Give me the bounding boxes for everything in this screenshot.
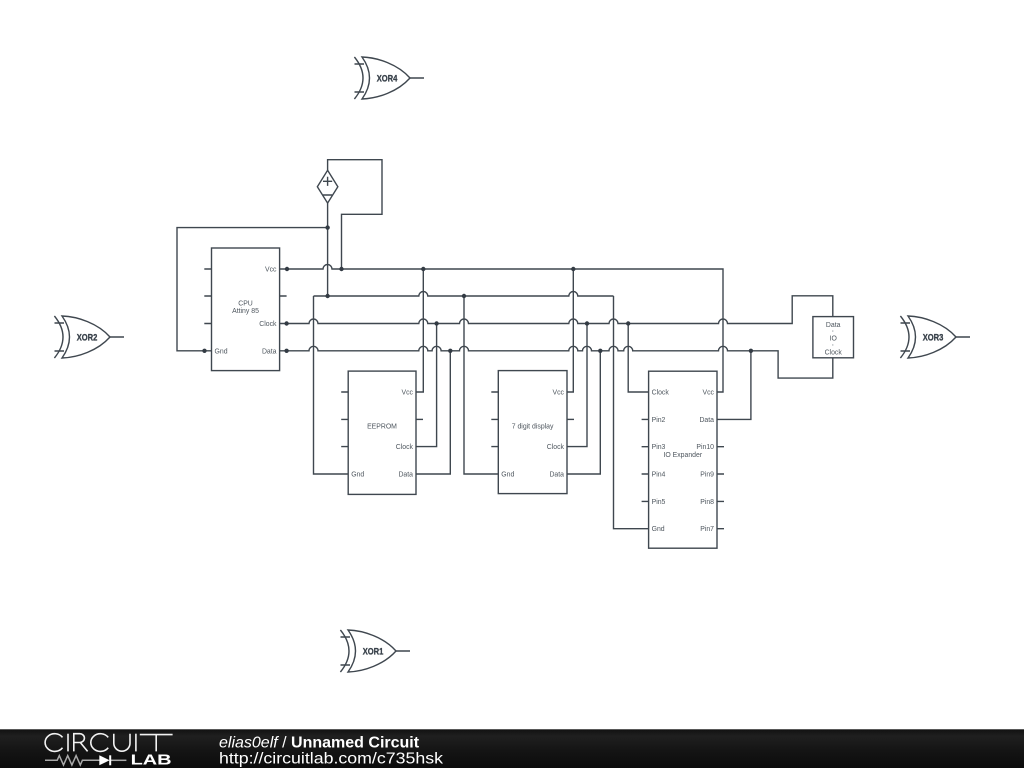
svg-text:elias0elf / Unnamed Circuit: elias0elf / Unnamed Circuit [219, 734, 420, 751]
svg-text:Data: Data [262, 348, 277, 355]
svg-text:Gnd: Gnd [501, 472, 514, 479]
svg-text:Vcc: Vcc [265, 267, 277, 274]
svg-text:Pin4: Pin4 [652, 472, 666, 479]
svg-text:Vcc: Vcc [553, 390, 565, 397]
svg-text:LAB: LAB [131, 752, 172, 768]
svg-text:Pin3: Pin3 [652, 444, 666, 451]
svg-text:IO Expander: IO Expander [663, 452, 702, 459]
svg-text:Vcc: Vcc [402, 390, 414, 397]
svg-text:Data: Data [826, 322, 841, 329]
svg-text:Clock: Clock [259, 321, 277, 328]
svg-text:Clock: Clock [547, 444, 565, 451]
svg-text:Data: Data [549, 472, 564, 479]
svg-text:XOR4: XOR4 [377, 73, 398, 84]
svg-text:XOR1: XOR1 [363, 646, 384, 657]
svg-text:Data: Data [398, 472, 413, 479]
svg-text:Pin7: Pin7 [700, 526, 714, 533]
svg-text:http://circuitlab.com/c735hsk: http://circuitlab.com/c735hsk [219, 751, 444, 768]
svg-text:Pin2: Pin2 [652, 417, 666, 424]
svg-text:Clock: Clock [652, 390, 670, 397]
svg-text:Clock: Clock [396, 444, 414, 451]
svg-text:Pin5: Pin5 [652, 499, 666, 506]
svg-text:Vcc: Vcc [703, 390, 715, 397]
svg-text:Pin10: Pin10 [696, 444, 714, 451]
svg-text:Attiny 85: Attiny 85 [232, 308, 259, 315]
svg-text:EEPROM: EEPROM [367, 424, 397, 431]
svg-text:Clock: Clock [825, 350, 843, 357]
svg-text:7 digit display: 7 digit display [512, 424, 554, 431]
svg-text:Gnd: Gnd [215, 348, 228, 355]
svg-text:CPU: CPU [238, 301, 253, 308]
svg-text:Data: Data [699, 417, 714, 424]
svg-text:IO: IO [830, 336, 838, 343]
svg-text:Pin8: Pin8 [700, 499, 714, 506]
svg-text:Pin9: Pin9 [700, 472, 714, 479]
svg-text:Gnd: Gnd [652, 526, 665, 533]
svg-text:XOR3: XOR3 [923, 332, 944, 343]
svg-text:Gnd: Gnd [351, 472, 364, 479]
svg-text:XOR2: XOR2 [77, 332, 98, 343]
